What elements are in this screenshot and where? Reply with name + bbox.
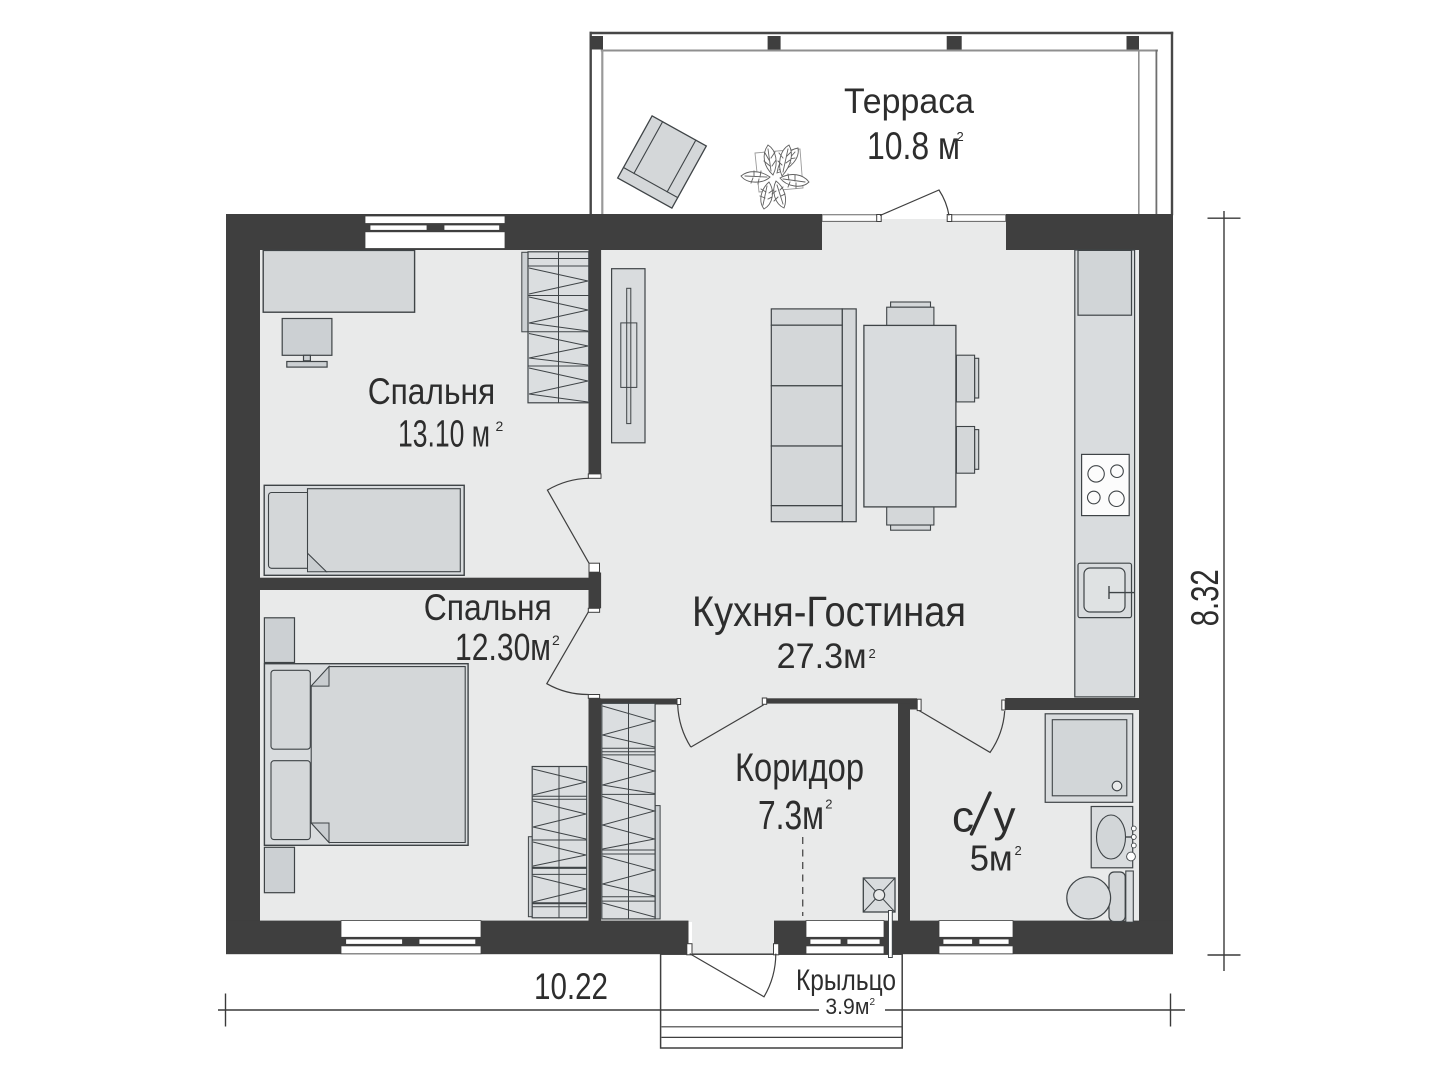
svg-text:2: 2 [957,129,964,144]
svg-text:13.10 м: 13.10 м [398,414,490,456]
svg-text:Терраса: Терраса [844,82,975,121]
svg-text:2: 2 [552,632,560,648]
svg-text:Крыльцо: Крыльцо [796,964,896,997]
svg-text:2: 2 [870,997,876,1008]
svg-text:12.30м: 12.30м [455,627,551,669]
svg-text:Спальня: Спальня [368,371,496,412]
svg-text:3.9м: 3.9м [825,994,869,1019]
svg-text:10.22: 10.22 [534,966,608,1007]
svg-text:27.3м: 27.3м [777,637,867,676]
svg-text:10.8 м: 10.8 м [867,125,960,168]
svg-text:2: 2 [869,646,876,661]
svg-text:Спальня: Спальня [424,587,552,628]
svg-text:5м: 5м [970,838,1013,879]
svg-text:8.32: 8.32 [1184,569,1227,626]
svg-text:Кухня-Гостиная: Кухня-Гостиная [692,588,966,636]
svg-text:2: 2 [825,797,832,812]
svg-text:Коридор: Коридор [735,746,864,790]
svg-text:у: у [994,793,1016,842]
svg-text:7.3м: 7.3м [758,792,824,838]
svg-text:2: 2 [1015,843,1022,858]
svg-text:2: 2 [496,418,504,434]
